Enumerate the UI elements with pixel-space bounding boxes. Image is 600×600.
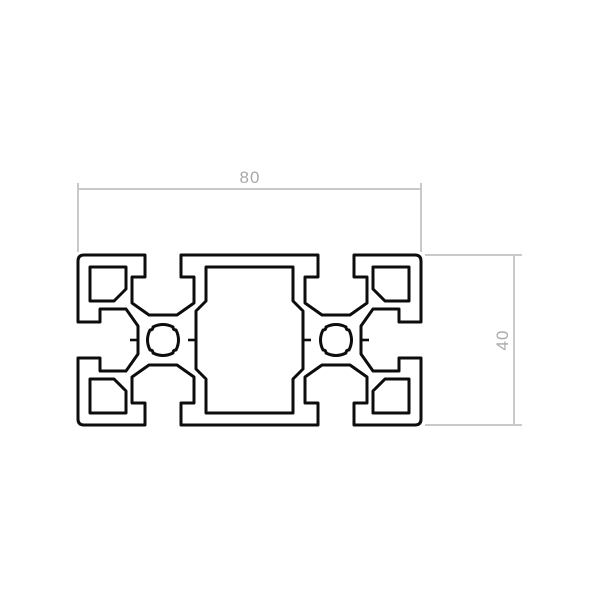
profile-drawing-canvas: 80 40 xyxy=(0,0,600,600)
height-dimension-label: 40 xyxy=(493,330,512,351)
drawing-area: 80 40 xyxy=(0,0,600,600)
width-dimension xyxy=(78,183,421,252)
profile-cross-section xyxy=(78,255,421,425)
width-dimension-label: 80 xyxy=(240,168,261,187)
profile-metal-body xyxy=(78,255,421,425)
